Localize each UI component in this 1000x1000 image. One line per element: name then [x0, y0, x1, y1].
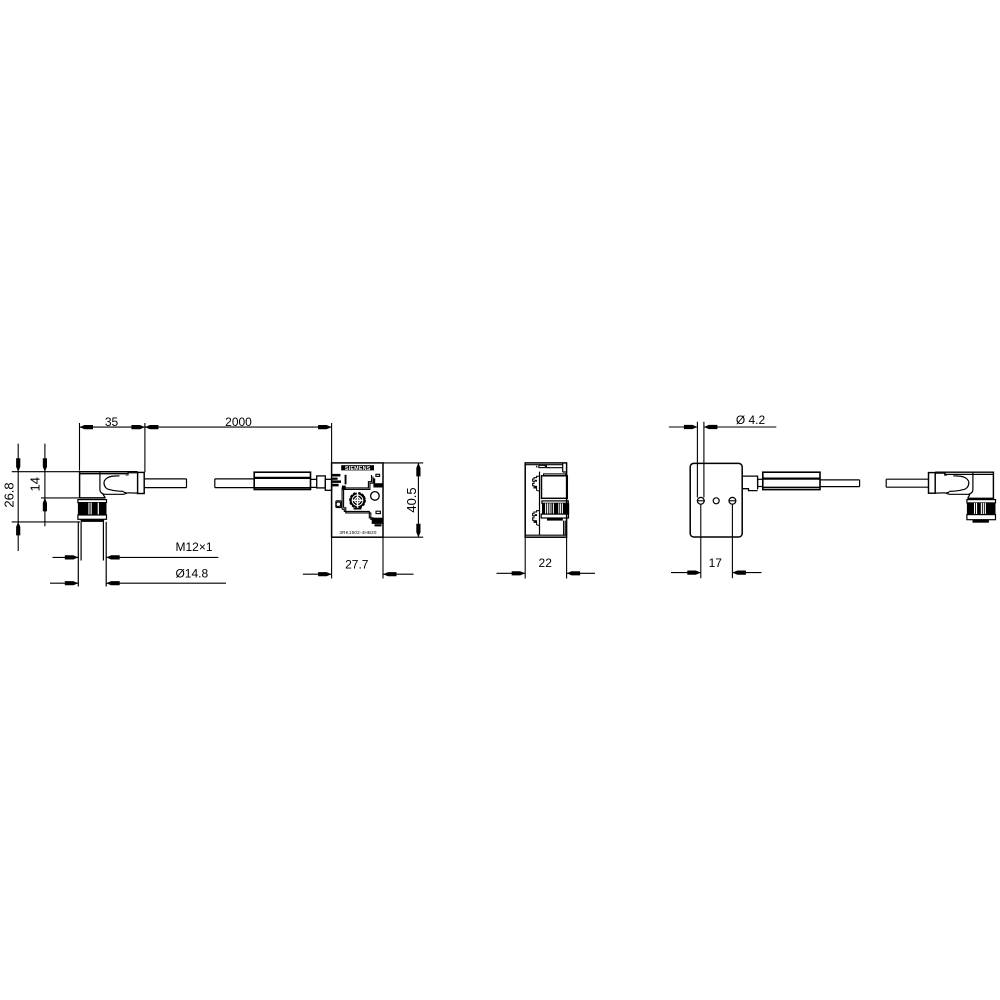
- svg-text:SIEMENS: SIEMENS: [345, 466, 371, 472]
- svg-text:26.8: 26.8: [2, 482, 17, 507]
- svg-text:27.7: 27.7: [345, 558, 369, 572]
- svg-text:35: 35: [105, 415, 119, 429]
- svg-text:M12×1: M12×1: [175, 540, 212, 554]
- svg-text:Ø14.8: Ø14.8: [175, 567, 208, 581]
- svg-text:2000: 2000: [225, 415, 252, 429]
- svg-text:22: 22: [539, 556, 553, 570]
- svg-text:17: 17: [709, 556, 723, 570]
- svg-text:3RK1902-4HB20: 3RK1902-4HB20: [339, 530, 377, 535]
- svg-text:14: 14: [28, 477, 43, 491]
- svg-text:Ø 4.2: Ø 4.2: [736, 413, 766, 427]
- svg-text:40.5: 40.5: [404, 487, 419, 512]
